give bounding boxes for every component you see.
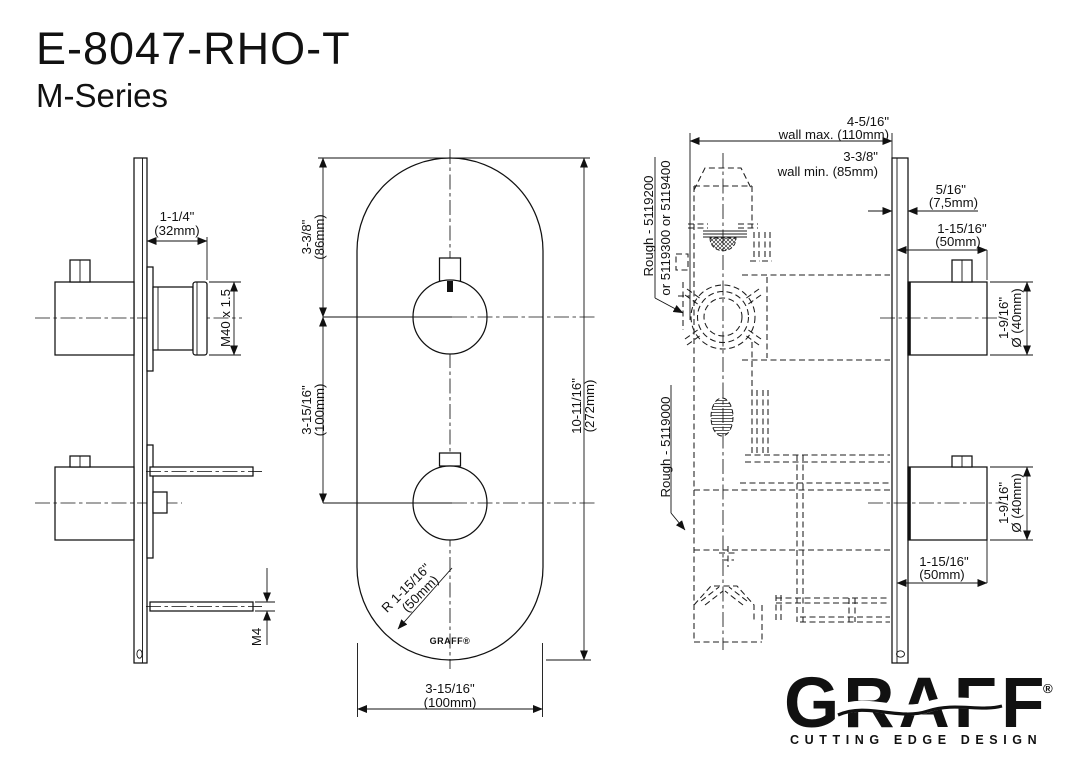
dim-center-to-center-mm: (100mm) [312,384,327,437]
stem-protrusion [153,492,167,513]
technical-drawing: E-8047-RHO-T M-Series 1-1/4" (32mm) [0,0,1089,773]
dim-width-mm: (100mm) [424,695,477,710]
dim-handle-depth-mm: (32mm) [154,223,199,238]
handle-side-cap [193,282,207,355]
dim-wall-min: wall min. (85mm) [777,164,878,179]
brand-name: GRAFF [784,664,1049,743]
dim-top-to-center-mm: (86mm) [312,214,327,259]
dim-thread-label: M40 x 1.5 [218,289,233,347]
escutcheon-edge-top [147,267,153,371]
valve-body-bottom [55,467,134,540]
handle-bottom-section [908,467,987,540]
sheet-background [0,0,1089,773]
rough-thermostat-line2: or 5119300 or 5119400 [658,160,673,295]
plate-brand-mark: GRAFF® [430,636,471,646]
knob-index-mark [447,281,453,292]
dim-screw-label: M4 [249,628,264,646]
escutcheon-edge-bottom [147,445,153,558]
dim-wall-max: wall max. (110mm) [778,127,889,142]
registered-mark: ® [1043,681,1053,696]
rough-thermostat-line1: Rough - 5119200 [641,176,656,277]
brand-tagline: CUTTING EDGE DESIGN [790,733,1042,747]
dim-handle2-len-mm: (50mm) [919,567,964,582]
model-number: E-8047-RHO-T [36,23,351,74]
knob-stem-bottom [440,453,461,466]
dim-handle2-dia-mm: Ø (40mm) [1009,473,1024,532]
trim-plate-section [892,158,908,663]
wall-plate-edge [134,158,147,663]
handle-top-section [908,282,987,355]
dim-handle1-len-mm: (50mm) [935,234,980,249]
dim-height-mm: (272mm) [582,380,597,433]
brand-logo: GRAFF ® CUTTING EDGE DESIGN [784,664,1053,747]
spec-sheet: E-8047-RHO-T M-Series 1-1/4" (32mm) [0,0,1089,773]
dim-handle1-dia-mm: Ø (40mm) [1009,288,1024,347]
dim-wall-min-in: 3-3/8" [843,149,878,164]
knob-stem-top [440,258,461,281]
dim-plate-thk-mm: (7,5mm) [929,195,978,210]
dim-width-in: 3-15/16" [425,681,475,696]
handle-side-body [153,287,193,350]
valve-body-top [55,282,134,355]
volume-cartridge [711,398,733,436]
dim-handle-depth-in: 1-1/4" [160,209,195,224]
series-name: M-Series [36,77,168,114]
